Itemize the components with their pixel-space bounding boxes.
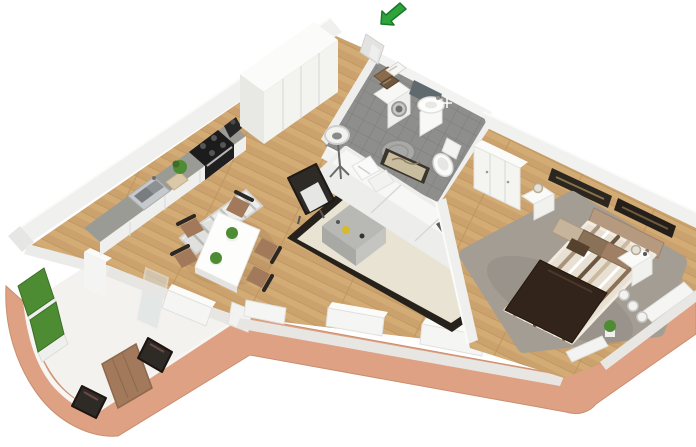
wardrobe-handle (486, 171, 489, 174)
bedside-lamp (632, 246, 641, 255)
coffee-machine-top (231, 120, 236, 125)
burner (209, 150, 215, 156)
burner (211, 135, 217, 141)
kitchen-faucet (152, 176, 156, 180)
faucet (436, 96, 440, 100)
burner (220, 142, 226, 148)
bedside-lamp (534, 184, 543, 193)
floorplan-render (0, 0, 696, 447)
table-plant (210, 252, 222, 264)
bedroom-plant (604, 320, 616, 332)
wardrobe-handle (507, 181, 510, 184)
entrance-arrow-icon (381, 3, 406, 25)
basin-bowl (425, 102, 437, 109)
plant-leaf (173, 161, 180, 168)
decor-bottle (360, 234, 365, 239)
burner (200, 143, 206, 149)
bowl (342, 226, 350, 234)
washer-drum (396, 106, 403, 113)
decor-item (336, 220, 340, 224)
decor-item (643, 252, 647, 256)
table-plant (226, 227, 238, 239)
